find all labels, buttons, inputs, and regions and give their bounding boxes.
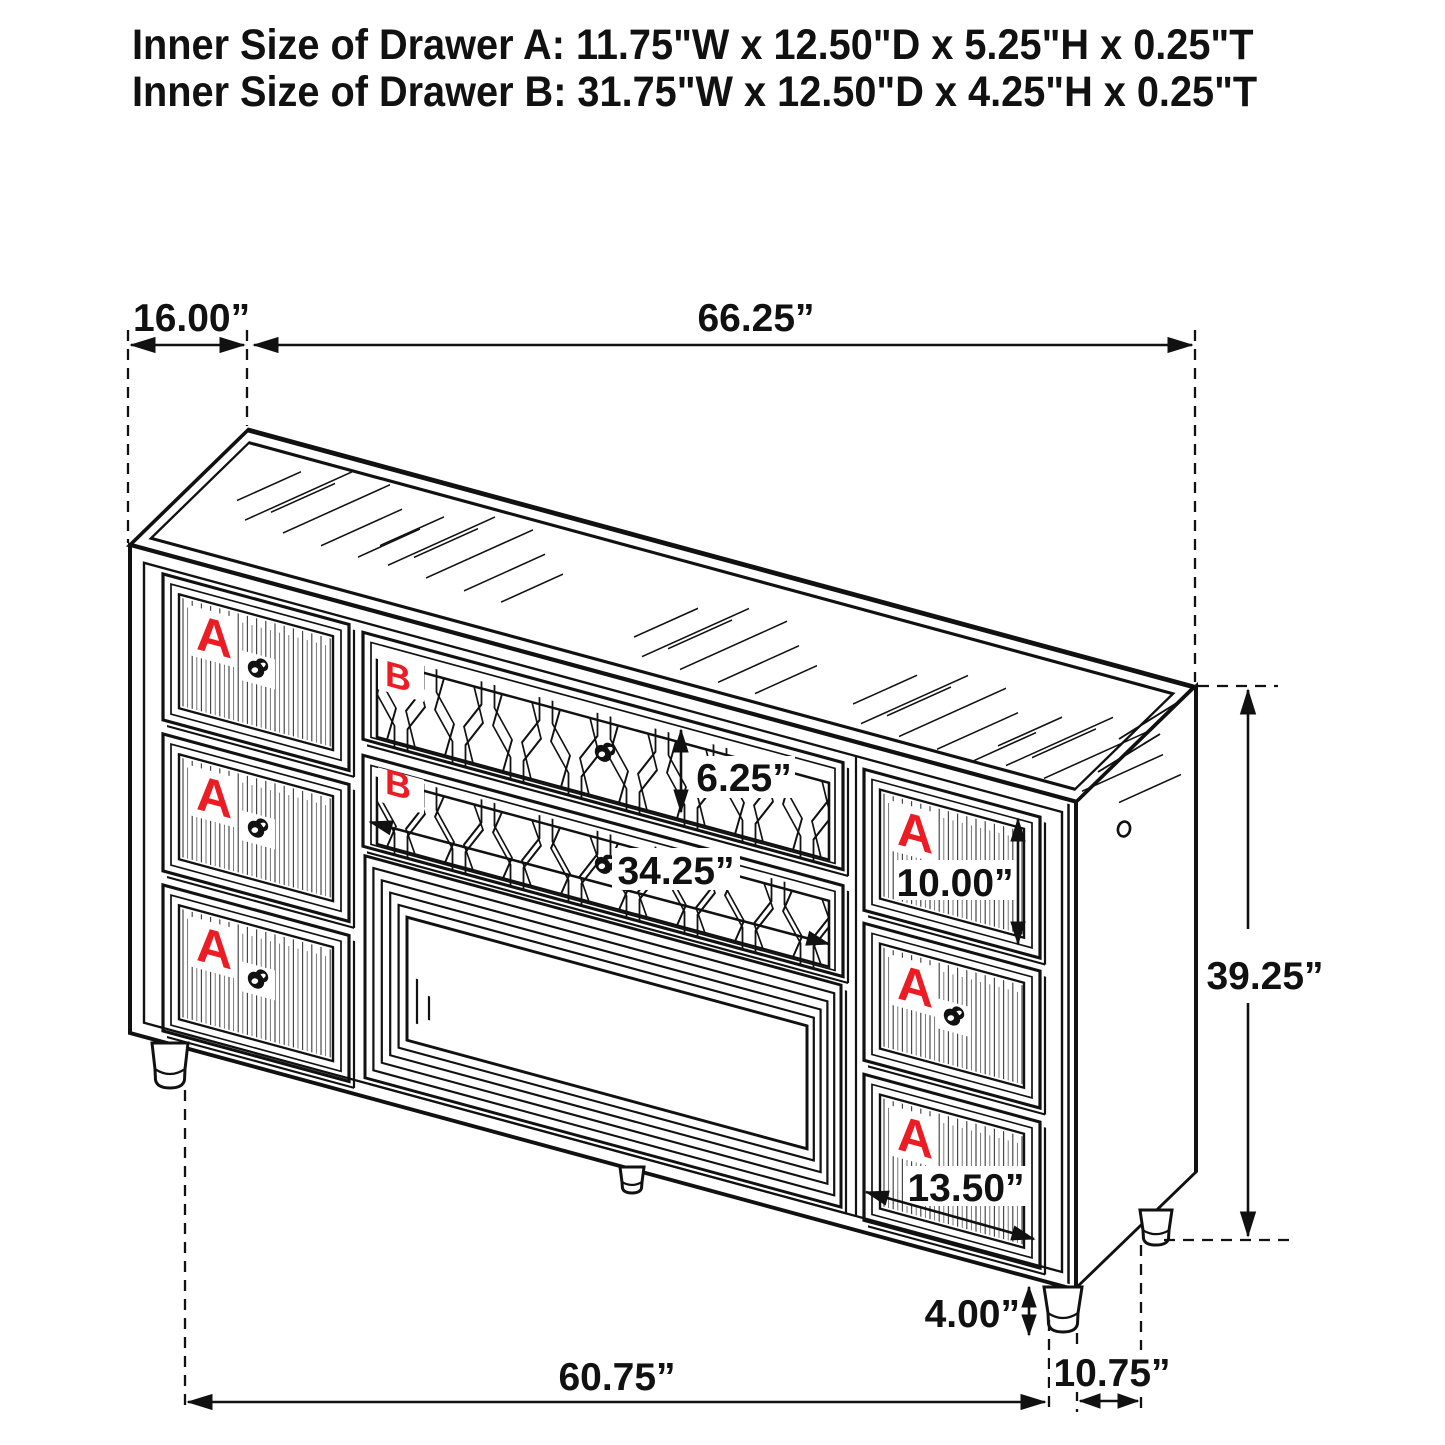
svg-text:A: A: [897, 799, 933, 865]
svg-text:60.75”: 60.75”: [558, 1356, 675, 1399]
svg-text:16.00”: 16.00”: [133, 297, 250, 340]
svg-text:B: B: [385, 653, 411, 700]
svg-text:A: A: [897, 953, 933, 1019]
svg-text:A: A: [196, 764, 232, 830]
svg-text:4.00”: 4.00”: [925, 1293, 1020, 1336]
svg-text:Inner Size of Drawer B: 31.75": Inner Size of Drawer B: 31.75"W x 12.50"…: [132, 68, 1257, 116]
svg-text:10.75”: 10.75”: [1053, 1352, 1170, 1395]
svg-text:39.25”: 39.25”: [1206, 955, 1323, 998]
svg-text:A: A: [196, 604, 232, 670]
svg-text:34.25”: 34.25”: [617, 850, 734, 893]
svg-text:Inner Size of Drawer A: 11.75": Inner Size of Drawer A: 11.75"W x 12.50"…: [132, 21, 1253, 69]
svg-text:6.25”: 6.25”: [696, 757, 791, 800]
svg-text:10.00”: 10.00”: [896, 862, 1013, 905]
svg-text:66.25”: 66.25”: [697, 297, 814, 340]
svg-text:B: B: [385, 761, 411, 808]
svg-text:A: A: [196, 915, 232, 981]
svg-text:A: A: [897, 1104, 933, 1170]
svg-text:13.50”: 13.50”: [907, 1167, 1024, 1210]
